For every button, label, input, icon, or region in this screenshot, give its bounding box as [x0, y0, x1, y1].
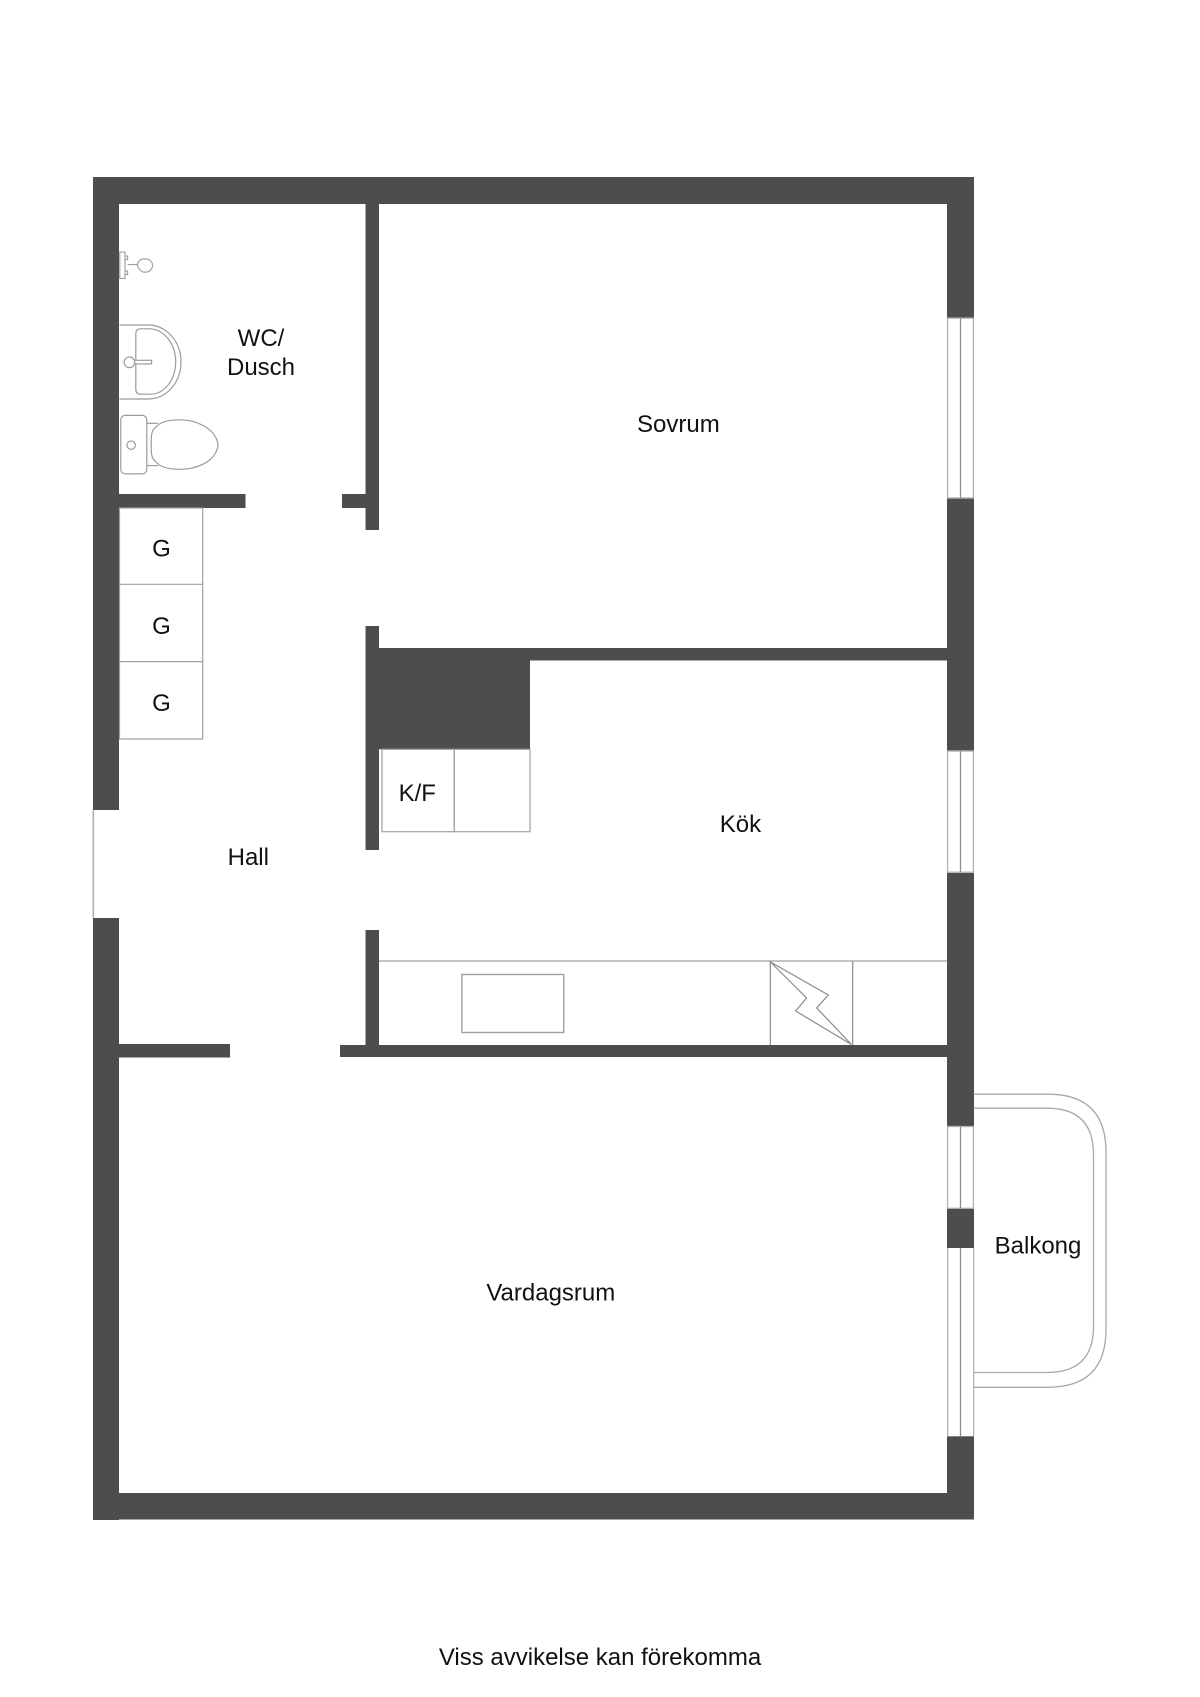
svg-text:Kök: Kök [720, 811, 762, 838]
svg-text:K/F: K/F [399, 780, 436, 807]
svg-text:Viss avvikelse kan förekomma: Viss avvikelse kan förekomma [439, 1644, 762, 1671]
svg-text:Vardagsrum: Vardagsrum [486, 1280, 615, 1307]
svg-text:G: G [152, 613, 171, 640]
svg-text:Sovrum: Sovrum [637, 411, 720, 438]
svg-text:G: G [152, 536, 171, 563]
svg-text:Hall: Hall [228, 844, 269, 871]
svg-text:Balkong: Balkong [995, 1233, 1082, 1260]
svg-text:Dusch: Dusch [227, 354, 295, 381]
svg-text:WC/: WC/ [238, 325, 285, 352]
svg-text:G: G [152, 690, 171, 717]
